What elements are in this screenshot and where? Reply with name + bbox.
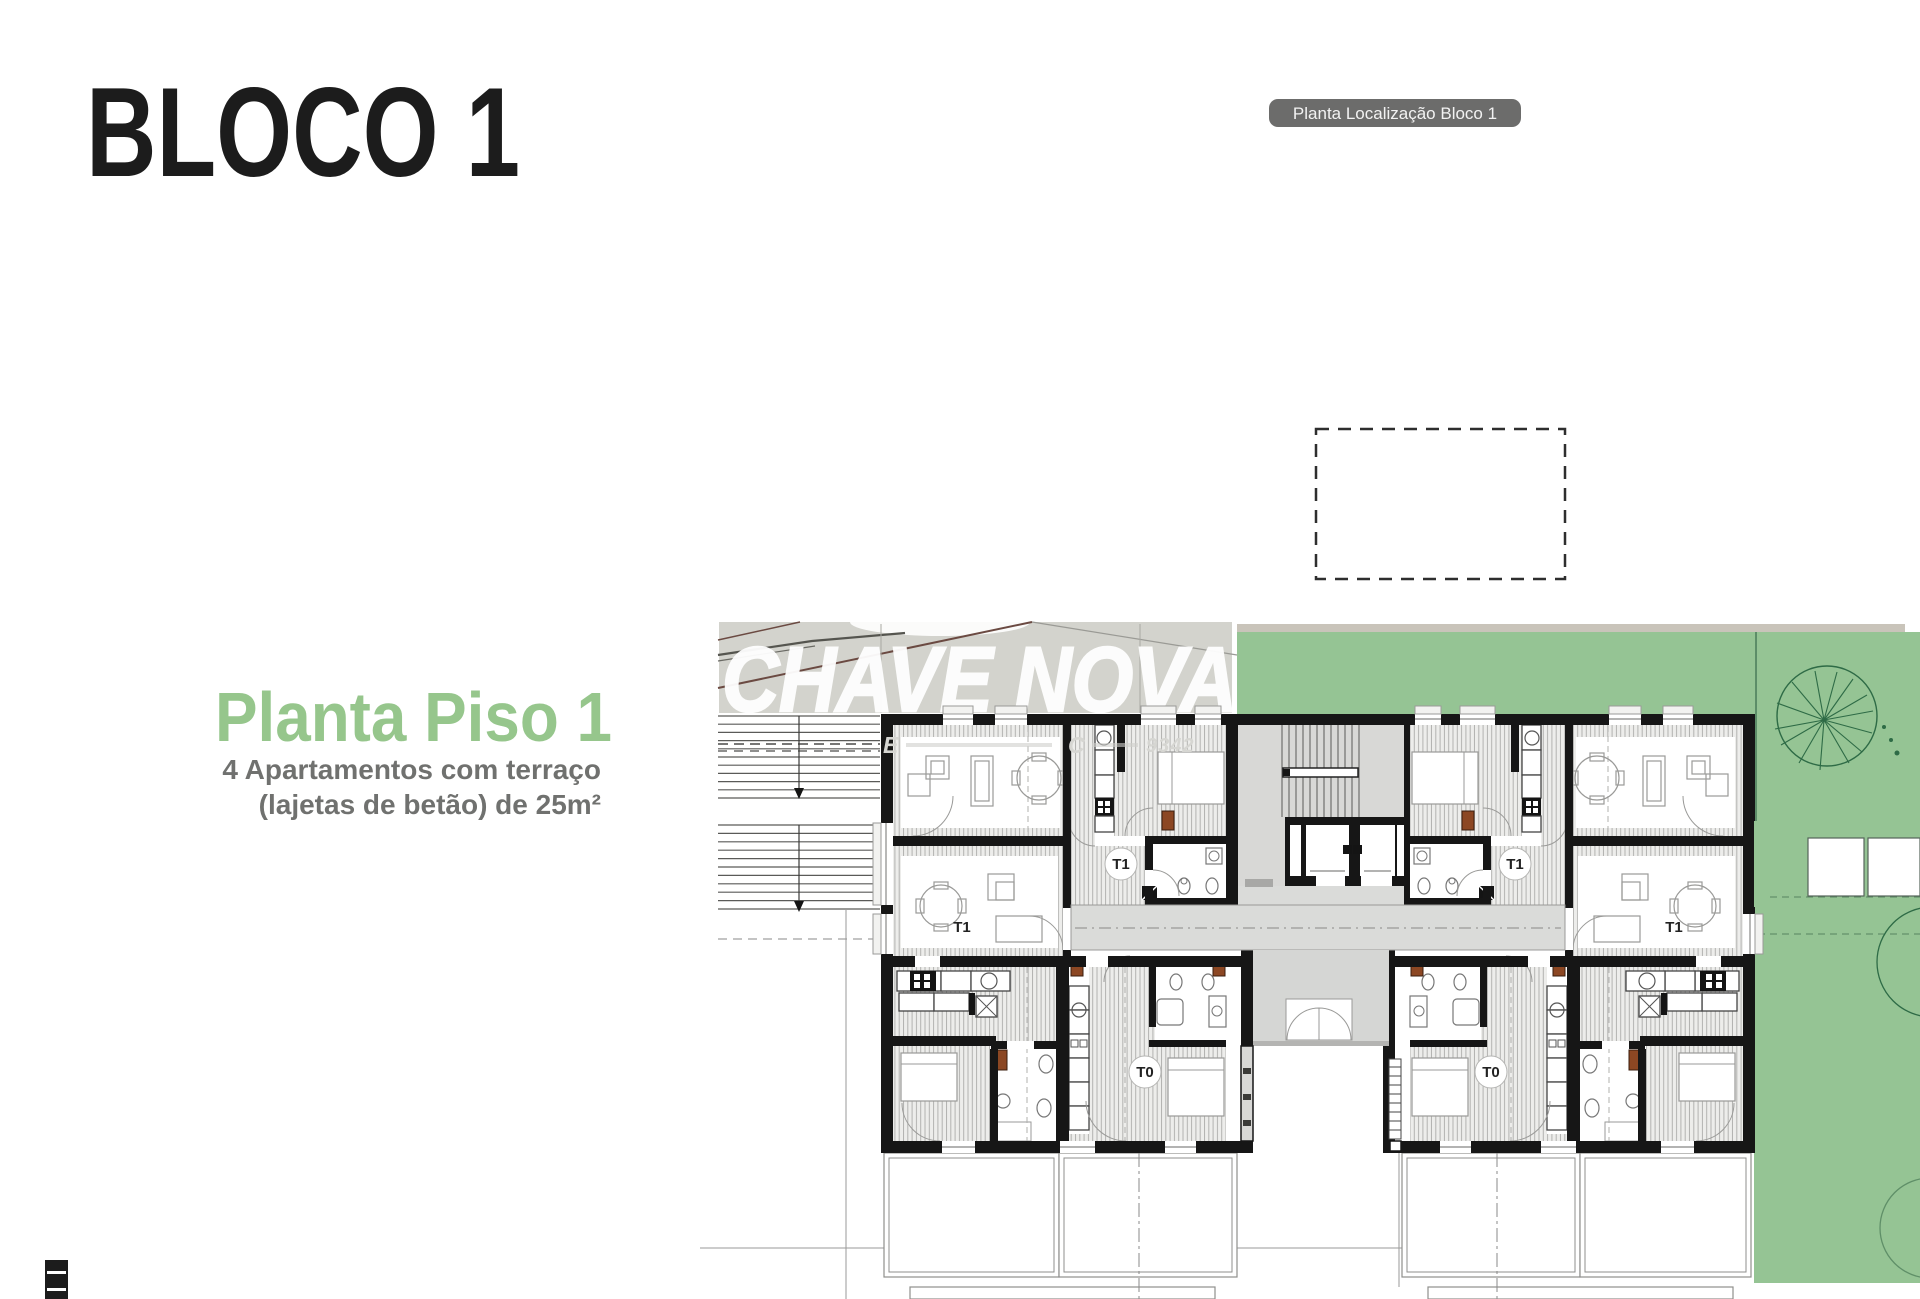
svg-text:9342: 9342	[1146, 735, 1195, 757]
svg-text:T1: T1	[1112, 856, 1130, 873]
svg-text:T1: T1	[1506, 856, 1524, 873]
svg-text:T1: T1	[953, 919, 971, 936]
svg-text:T0: T0	[1482, 1064, 1500, 1081]
svg-text:4 Apartamentos com terraço: 4 Apartamentos com terraço	[222, 754, 601, 785]
svg-text:C: C	[1068, 732, 1085, 758]
svg-text:(lajetas de betão) de 25m²: (lajetas de betão) de 25m²	[259, 789, 601, 820]
svg-text:T0: T0	[1136, 1064, 1154, 1081]
svg-text:Planta Localização Bloco 1: Planta Localização Bloco 1	[1293, 104, 1497, 123]
svg-text:BLOCO 1: BLOCO 1	[86, 61, 520, 203]
svg-text:E: E	[883, 732, 899, 758]
svg-text:T1: T1	[1665, 919, 1683, 936]
svg-text:Planta Piso 1: Planta Piso 1	[215, 678, 612, 756]
